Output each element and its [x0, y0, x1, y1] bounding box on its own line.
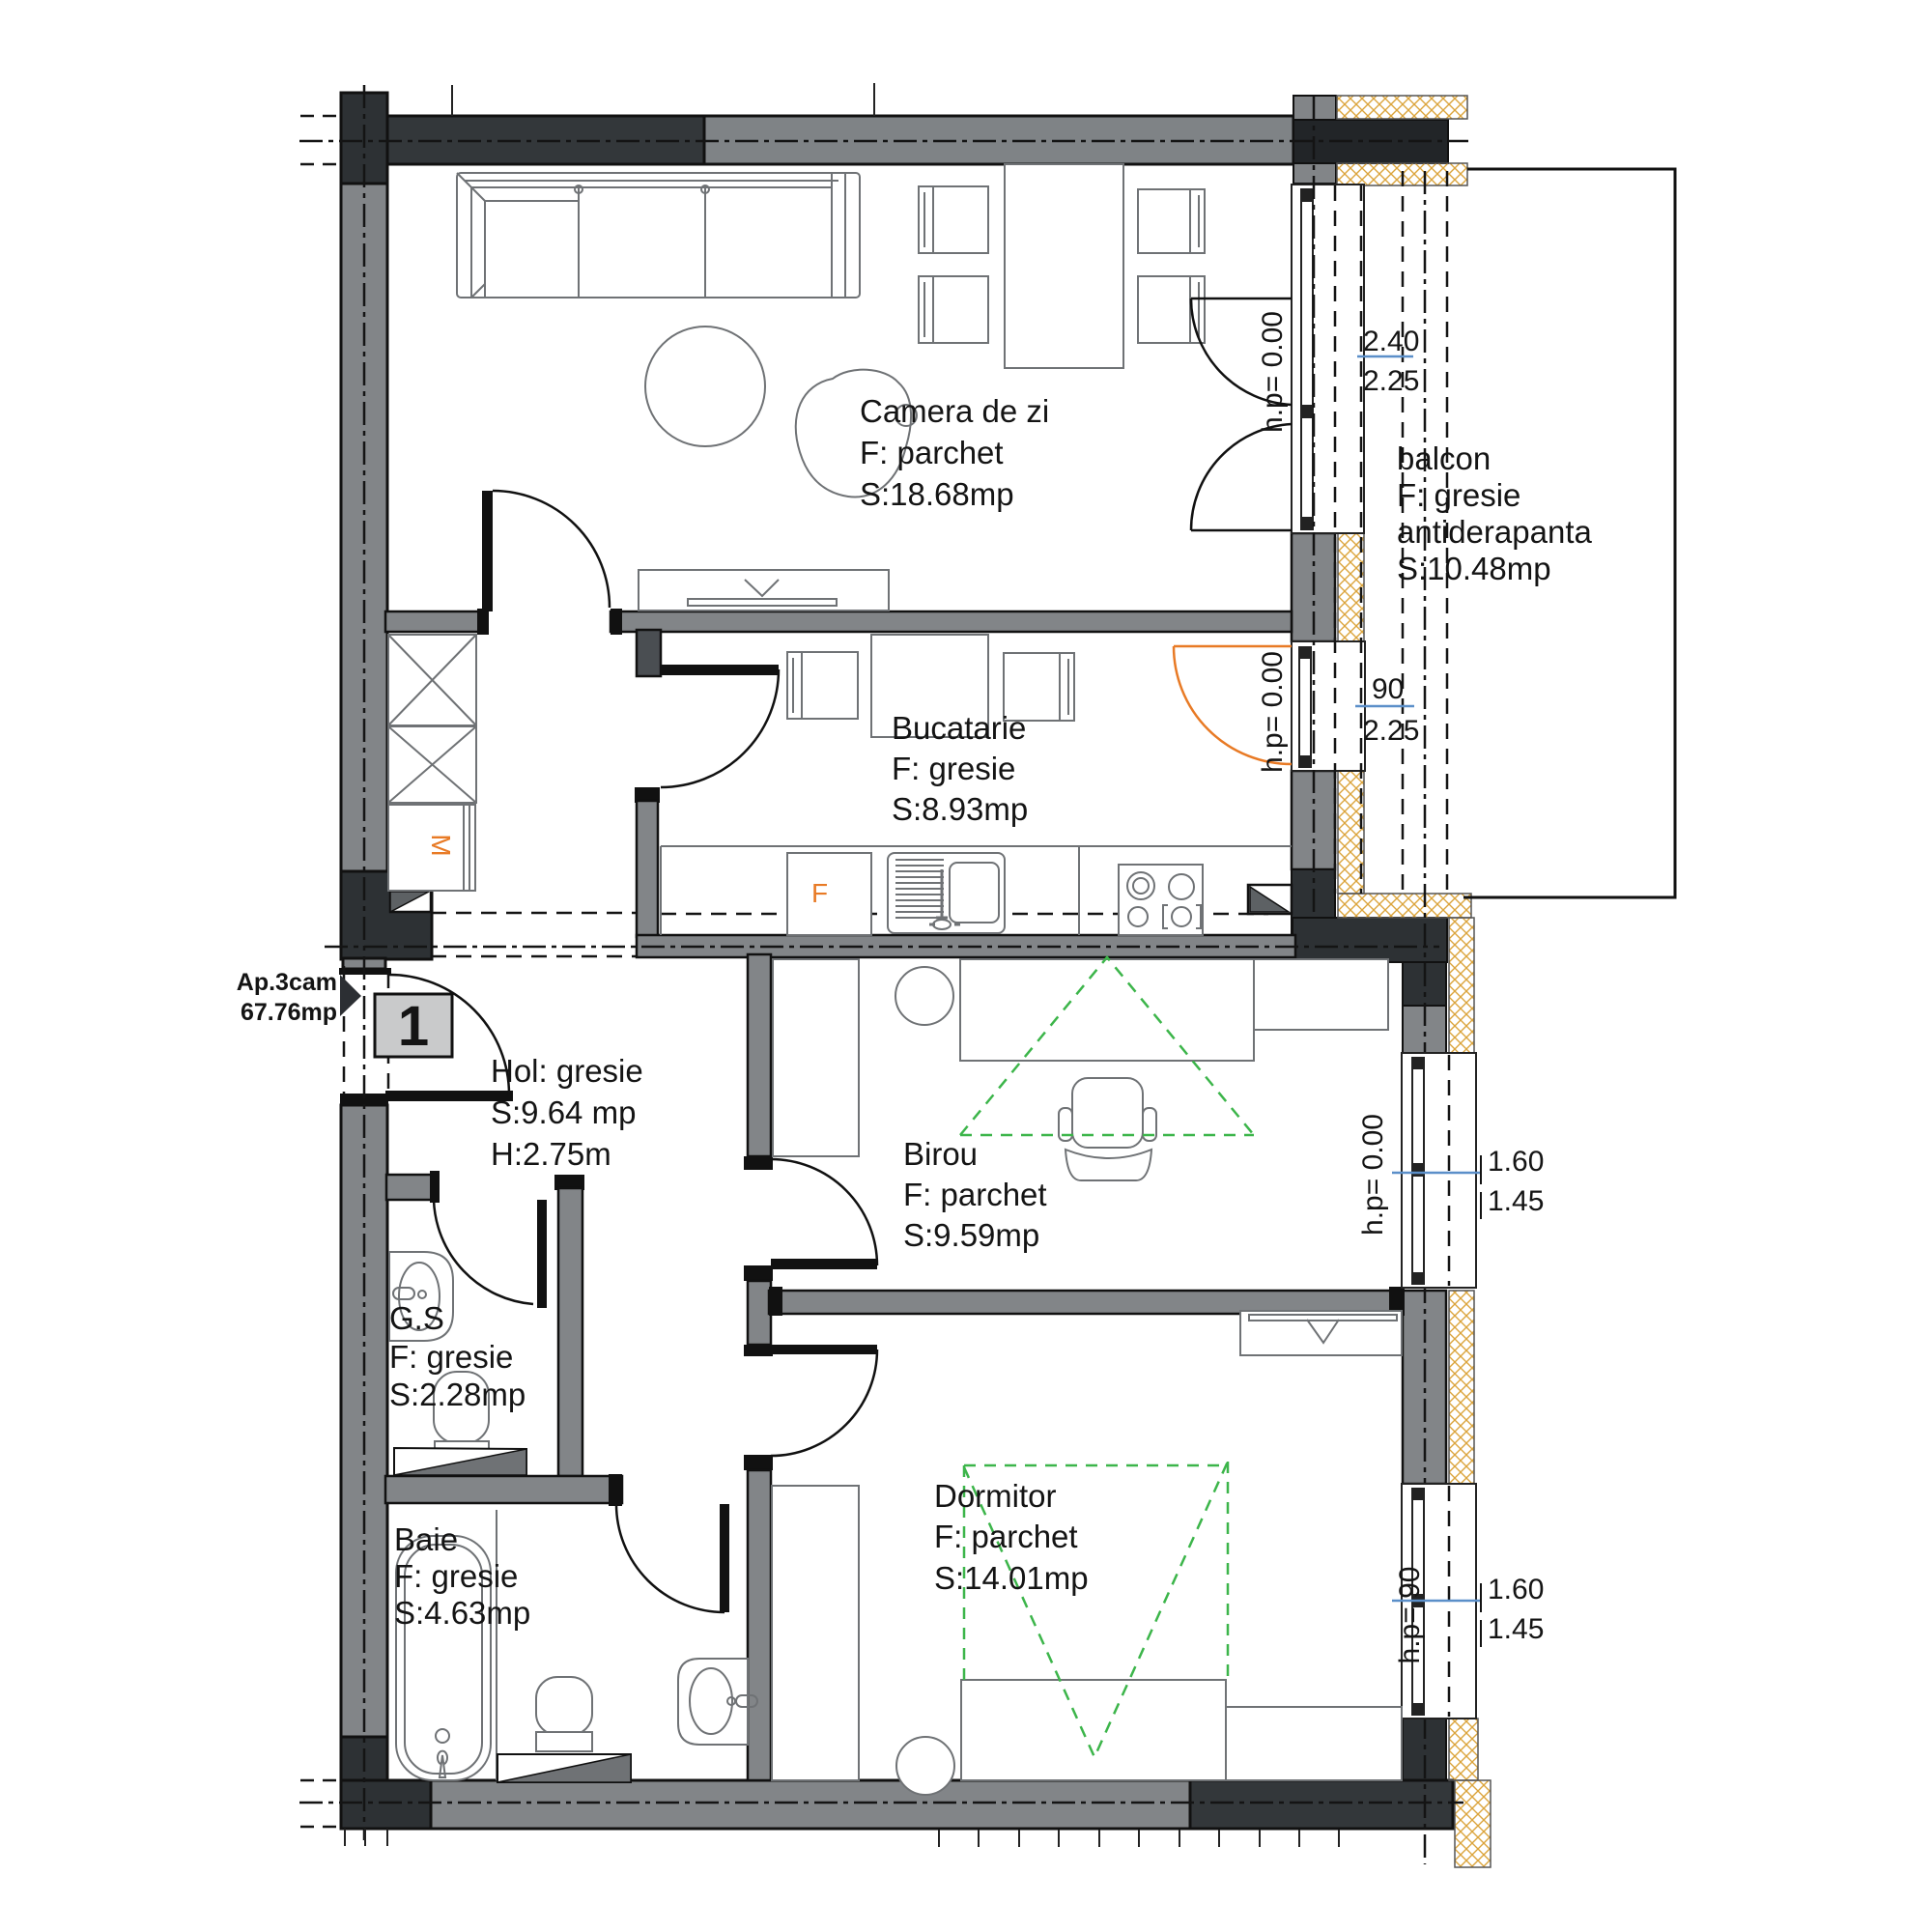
- svg-text:1.60: 1.60: [1488, 1146, 1544, 1178]
- svg-text:F: parchet: F: parchet: [934, 1519, 1078, 1554]
- svg-text:Birou: Birou: [903, 1136, 978, 1172]
- svg-text:F: F: [811, 878, 828, 908]
- svg-text:h.p= 0.00: h.p= 0.00: [1357, 1114, 1389, 1236]
- svg-text:F: gresie: F: gresie: [892, 751, 1015, 786]
- svg-text:h.p= 0.00: h.p= 0.00: [1257, 651, 1289, 773]
- svg-text:2.25: 2.25: [1363, 715, 1419, 747]
- svg-text:1: 1: [398, 995, 429, 1058]
- svg-text:M: M: [426, 834, 456, 856]
- svg-text:Baie: Baie: [394, 1521, 458, 1557]
- svg-text:2.25: 2.25: [1363, 365, 1419, 397]
- svg-text:h.p= 0.00: h.p= 0.00: [1257, 311, 1289, 433]
- svg-text:Hol: gresie: Hol: gresie: [491, 1053, 643, 1089]
- svg-text:S:2.28mp: S:2.28mp: [389, 1377, 526, 1412]
- svg-text:2.40: 2.40: [1363, 326, 1419, 357]
- svg-text:1.45: 1.45: [1488, 1613, 1544, 1645]
- svg-text:antiderapanta: antiderapanta: [1397, 514, 1592, 550]
- svg-text:1.60: 1.60: [1488, 1574, 1544, 1605]
- svg-text:S:18.68mp: S:18.68mp: [860, 476, 1014, 512]
- svg-text:Camera de zi: Camera de zi: [860, 393, 1049, 429]
- svg-text:balcon: balcon: [1397, 440, 1491, 476]
- svg-text:S:4.63mp: S:4.63mp: [394, 1595, 530, 1631]
- svg-text:Dormitor: Dormitor: [934, 1478, 1057, 1514]
- svg-text:F: parchet: F: parchet: [860, 435, 1004, 470]
- svg-text:F: parchet: F: parchet: [903, 1177, 1047, 1212]
- svg-text:90: 90: [1372, 673, 1404, 705]
- svg-text:h.p= 90: h.p= 90: [1394, 1567, 1426, 1664]
- svg-text:1.45: 1.45: [1488, 1185, 1544, 1217]
- svg-text:Ap.3cam: Ap.3cam: [237, 969, 337, 996]
- svg-text:67.76mp: 67.76mp: [241, 999, 337, 1026]
- svg-text:S:8.93mp: S:8.93mp: [892, 791, 1028, 827]
- svg-text:S:14.01mp: S:14.01mp: [934, 1560, 1089, 1596]
- svg-text:F: gresie: F: gresie: [1397, 477, 1520, 513]
- svg-text:Bucatarie: Bucatarie: [892, 710, 1026, 746]
- svg-text:S:10.48mp: S:10.48mp: [1397, 551, 1551, 586]
- svg-text:F: gresie: F: gresie: [389, 1339, 513, 1375]
- svg-text:S:9.64 mp: S:9.64 mp: [491, 1094, 636, 1130]
- svg-text:G.S: G.S: [389, 1300, 444, 1336]
- svg-text:H:2.75m: H:2.75m: [491, 1136, 611, 1172]
- svg-text:S:9.59mp: S:9.59mp: [903, 1217, 1039, 1253]
- svg-text:F: gresie: F: gresie: [394, 1558, 518, 1594]
